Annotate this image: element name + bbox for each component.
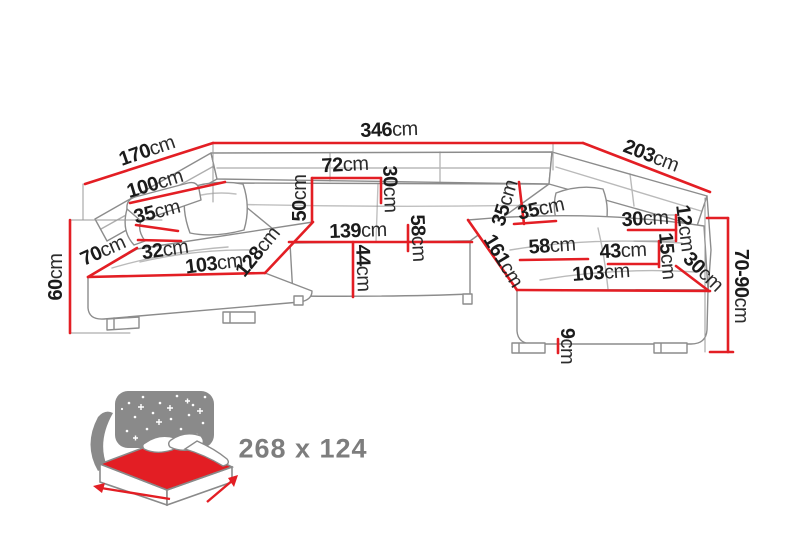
- sofa-outline: [88, 152, 711, 353]
- dimension-line-left-arm-32: [138, 240, 181, 241]
- dimension-line-left-arm-35: [136, 225, 178, 231]
- sofa-dimension-diagram: 346cm170cm203cm100cm35cm70cm32cm103cm128…: [0, 0, 800, 533]
- bed-size-label: 268 x 124: [238, 434, 367, 465]
- dimension-line-right-seat-58: [520, 259, 588, 260]
- dimension-line-right-seat-103: [517, 290, 710, 291]
